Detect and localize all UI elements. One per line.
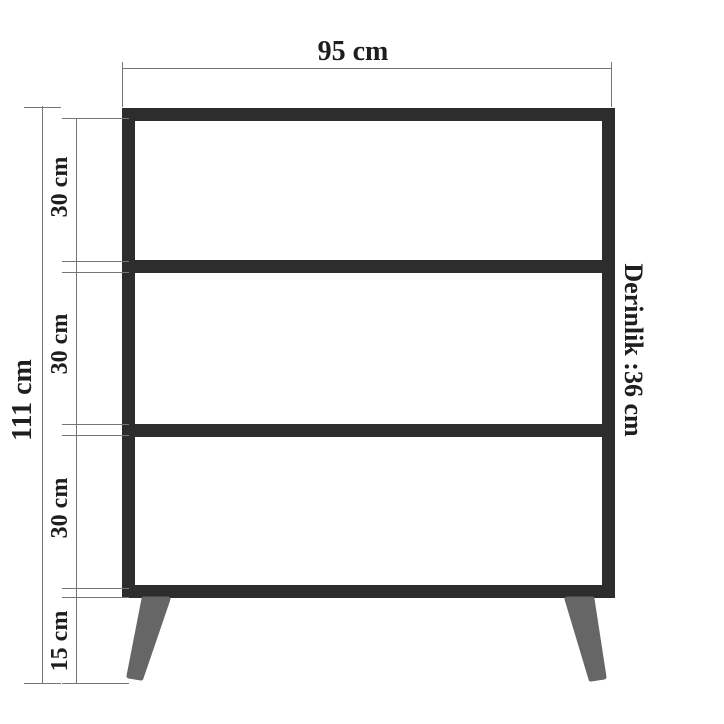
width-dimension-label: 95 cm bbox=[318, 38, 389, 66]
furniture-dimension-diagram: 95 cm 111 cm 30 cm 30 cm 30 cm 15 cm Der… bbox=[0, 0, 724, 724]
section-tick-3 bbox=[62, 272, 129, 273]
total-height-line bbox=[42, 106, 43, 684]
section-2-label: 30 cm bbox=[48, 314, 72, 375]
legs-height-label: 15 cm bbox=[48, 611, 72, 672]
cabinet-legs bbox=[0, 0, 724, 724]
section-tick-1 bbox=[62, 118, 129, 119]
depth-dimension-label: Derinlik :36 cm bbox=[620, 263, 646, 436]
section-tick-7 bbox=[62, 597, 129, 598]
total-height-label: 111 cm bbox=[9, 359, 37, 441]
total-height-bottom-tick bbox=[24, 683, 61, 684]
left-leg bbox=[129, 599, 168, 678]
top-dimension-line bbox=[122, 68, 612, 69]
section-tick-8 bbox=[62, 683, 129, 684]
top-dimension-right-tick bbox=[611, 62, 612, 107]
right-leg bbox=[567, 599, 604, 679]
section-3-label: 30 cm bbox=[48, 478, 72, 539]
section-1-label: 30 cm bbox=[48, 157, 72, 218]
section-dimension-line bbox=[76, 118, 77, 684]
section-tick-6 bbox=[62, 588, 129, 589]
total-height-top-tick bbox=[24, 107, 61, 108]
section-tick-5 bbox=[62, 435, 129, 436]
section-tick-4 bbox=[62, 424, 129, 425]
top-dimension-left-tick bbox=[122, 62, 123, 107]
section-tick-2 bbox=[62, 261, 129, 262]
